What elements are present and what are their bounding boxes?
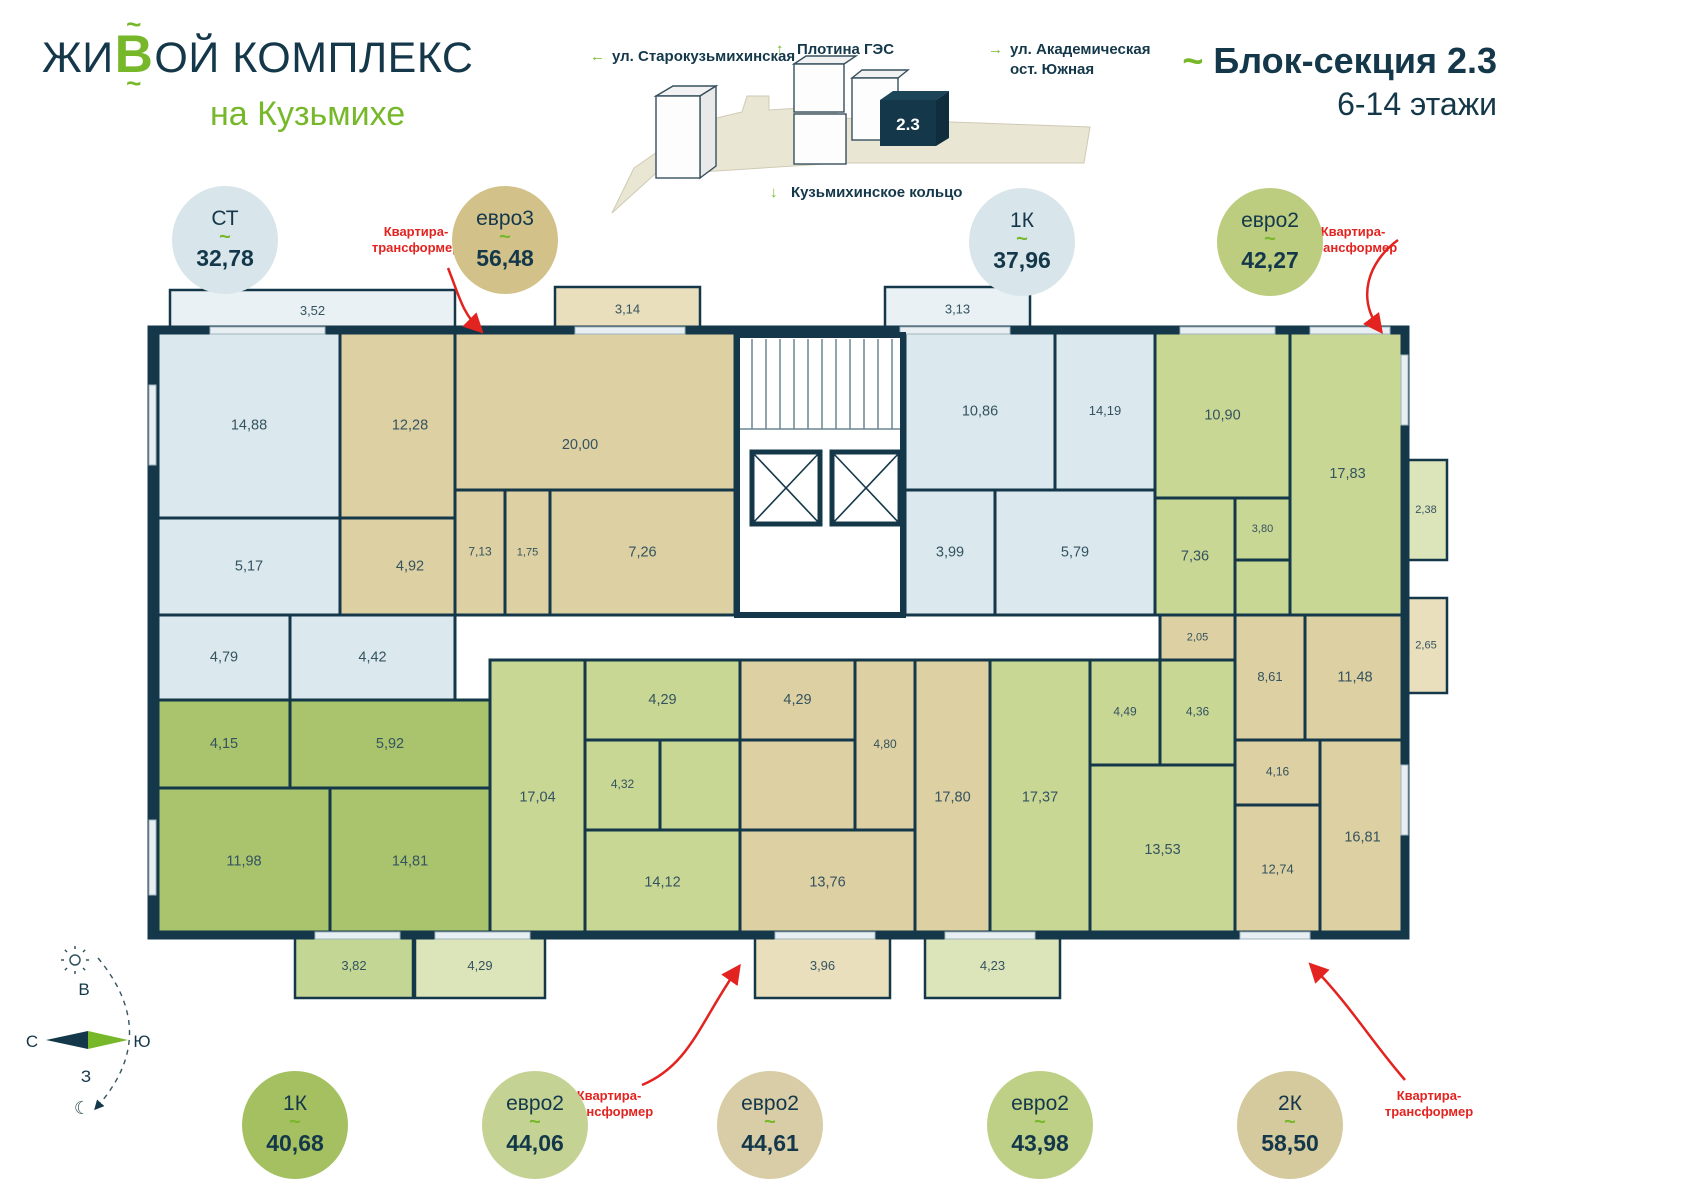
- apartment-badge[interactable]: 1К~40,68: [242, 1071, 348, 1179]
- arrow-right-icon: →: [988, 41, 1003, 58]
- room-area-label: 17,80: [934, 789, 970, 805]
- apartment-badge[interactable]: евро2~44,61: [717, 1071, 823, 1179]
- compass-west: З: [81, 1067, 91, 1086]
- badge-area: 43,98: [1011, 1131, 1069, 1156]
- section-name: Блок-секция 2.3: [1213, 40, 1497, 81]
- tilde-icon: ~: [126, 70, 142, 96]
- balcony-area-label: 4,29: [467, 958, 492, 973]
- site-map: 2.3 ← ул. Старокузьмихинская ↑ Плотина Г…: [590, 41, 1150, 213]
- room[interactable]: [1235, 560, 1290, 615]
- room-area-label: 11,48: [1337, 669, 1372, 685]
- room-area-label: 4,32: [611, 777, 635, 791]
- room-area-label: 14,19: [1089, 403, 1122, 418]
- room-area-label: 4,42: [358, 649, 386, 665]
- badge-area: 32,78: [196, 246, 254, 271]
- badge-area: 37,96: [993, 248, 1051, 273]
- balcony-area-label: 3,96: [810, 958, 835, 973]
- tilde-icon: ~: [289, 1116, 301, 1129]
- moon-icon: ☾: [74, 1098, 90, 1118]
- badge-area: 58,50: [1261, 1131, 1319, 1156]
- room[interactable]: [660, 740, 740, 830]
- floorplan-canvas: 2.3 ← ул. Старокузьмихинская ↑ Плотина Г…: [0, 0, 1683, 1190]
- apartment-badge[interactable]: СТ~32,78: [172, 186, 278, 294]
- room-area-label: 4,36: [1186, 705, 1210, 719]
- room-area-label: 13,53: [1144, 842, 1180, 858]
- room-area-label: 7,13: [468, 545, 492, 559]
- tilde-icon: ~: [1284, 1116, 1296, 1129]
- room-area-label: 5,92: [376, 736, 404, 752]
- balcony-area-label: 3,14: [615, 301, 640, 316]
- tilde-icon: ~: [1034, 1116, 1046, 1129]
- tilde-icon: ~: [499, 231, 511, 244]
- logo: жи~В~ой комплекс на Кузьмихе: [42, 28, 473, 134]
- tilde-icon: ~: [126, 11, 142, 37]
- room-area-label: 4,29: [783, 692, 811, 708]
- balcony-area-label: 4,23: [980, 958, 1005, 973]
- arrow-down-icon: ↓: [770, 184, 778, 201]
- elevator: [752, 452, 820, 524]
- room-area-label: 1,75: [517, 546, 538, 558]
- room-area-label: 17,04: [519, 789, 555, 805]
- balcony-area-label: 3,13: [945, 301, 970, 316]
- balcony-area-label: 2,65: [1415, 639, 1436, 651]
- badge-area: 56,48: [476, 246, 534, 271]
- transformer-label: Квартира-трансформер: [1368, 1088, 1490, 1119]
- compass-east: В: [78, 980, 89, 999]
- badge-area: 42,27: [1241, 248, 1299, 273]
- transformer-arrow: [642, 968, 738, 1085]
- room-area-label: 20,00: [562, 437, 598, 453]
- badge-area: 44,61: [741, 1131, 799, 1156]
- apartment-badge[interactable]: 1К~37,96: [969, 188, 1075, 296]
- room-area-label: 5,17: [235, 558, 263, 574]
- room-area-label: 4,92: [396, 558, 424, 574]
- room-area-label: 4,16: [1266, 765, 1290, 779]
- compass: В С Ю З ☾: [26, 945, 151, 1118]
- room-area-label: 3,99: [936, 544, 964, 560]
- room-area-label: 4,79: [210, 649, 238, 665]
- room-area-label: 11,98: [226, 853, 261, 869]
- room-area-label: 5,79: [1061, 544, 1089, 560]
- room-area-label: 14,12: [644, 874, 680, 890]
- balcony-area-label: 3,52: [300, 303, 325, 318]
- site-map-block-label: 2.3: [896, 115, 920, 134]
- tilde-icon: ~: [1264, 233, 1276, 246]
- logo-accent-letter: ~В~: [114, 28, 155, 81]
- badge-area: 40,68: [266, 1131, 324, 1156]
- logo-line1: жи~В~ой комплекс: [42, 28, 473, 83]
- room-area-label: 14,88: [231, 417, 267, 433]
- room-area-label: 16,81: [1344, 829, 1380, 845]
- room-area-label: 12,74: [1261, 861, 1294, 876]
- street-label: ост. Южная: [1010, 61, 1094, 78]
- street-label: Кузьмихинское кольцо: [791, 184, 962, 201]
- room-area-label: 10,86: [962, 403, 998, 419]
- elevator: [832, 452, 900, 524]
- section-floors: 6-14 этажи: [1182, 86, 1497, 123]
- room[interactable]: [740, 740, 855, 830]
- room-area-label: 10,90: [1204, 407, 1240, 423]
- street-label: Плотина ГЭС: [797, 41, 894, 58]
- compass-needle-north: [46, 1031, 88, 1049]
- room-area-label: 17,37: [1022, 789, 1058, 805]
- room[interactable]: [455, 333, 735, 490]
- balcony-area-label: 3,82: [341, 958, 366, 973]
- compass-north: С: [26, 1032, 38, 1051]
- room-area-label: 4,49: [1113, 705, 1137, 719]
- floorplan-page: жи~В~ой комплекс на Кузьмихе ~Блок-секци…: [0, 0, 1683, 1190]
- tilde-icon: ~: [529, 1116, 541, 1129]
- apartment-badge[interactable]: евро2~42,27: [1217, 188, 1323, 296]
- sun-path-arc: [96, 958, 130, 1108]
- apartment-badge[interactable]: евро3~56,48: [452, 186, 558, 294]
- site-map-building: [656, 86, 716, 178]
- room-area-label: 4,80: [873, 737, 897, 751]
- street-label: ул. Старокузьмихинская: [612, 48, 795, 65]
- section-title-line1: ~Блок-секция 2.3: [1182, 40, 1497, 82]
- room-area-label: 8,61: [1257, 669, 1282, 684]
- room-area-label: 4,29: [648, 692, 676, 708]
- room-area-label: 4,15: [210, 736, 238, 752]
- section-title: ~Блок-секция 2.3 6-14 этажи: [1182, 40, 1497, 123]
- room-area-label: 14,81: [392, 853, 428, 869]
- arrow-up-icon: ↑: [776, 41, 784, 58]
- room-area-label: 7,36: [1181, 548, 1209, 564]
- transformer-arrow: [1312, 966, 1405, 1080]
- compass-south: Ю: [133, 1032, 150, 1051]
- arrow-left-icon: ←: [590, 48, 605, 65]
- logo-subtitle: на Кузьмихе: [210, 95, 473, 134]
- room-area-label: 13,76: [809, 874, 845, 890]
- logo-part2: ой комплекс: [154, 34, 473, 82]
- compass-needle-south: [88, 1031, 128, 1049]
- room-area-label: 7,26: [628, 544, 656, 560]
- room-area-label: 12,28: [392, 417, 428, 433]
- tilde-icon: ~: [219, 231, 231, 244]
- street-label: ул. Академическая: [1010, 41, 1150, 58]
- balcony-area-label: 2,38: [1415, 504, 1436, 516]
- apartment-badge[interactable]: евро2~43,98: [987, 1071, 1093, 1179]
- badge-area: 44,06: [506, 1131, 564, 1156]
- logo-part1: жи: [42, 34, 114, 82]
- tilde-icon: ~: [1182, 40, 1203, 81]
- room-area-label: 17,83: [1329, 466, 1365, 482]
- room-area-label: 3,80: [1252, 523, 1273, 535]
- apartment-badge[interactable]: евро2~44,06: [482, 1071, 588, 1179]
- site-map-current-block[interactable]: 2.3: [880, 91, 949, 146]
- apartment-badge[interactable]: 2К~58,50: [1237, 1071, 1343, 1179]
- tilde-icon: ~: [1016, 233, 1028, 246]
- tilde-icon: ~: [764, 1116, 776, 1129]
- stair-elevator-core: [737, 335, 903, 615]
- room-area-label: 2,05: [1187, 631, 1208, 643]
- sun-icon: [60, 945, 90, 975]
